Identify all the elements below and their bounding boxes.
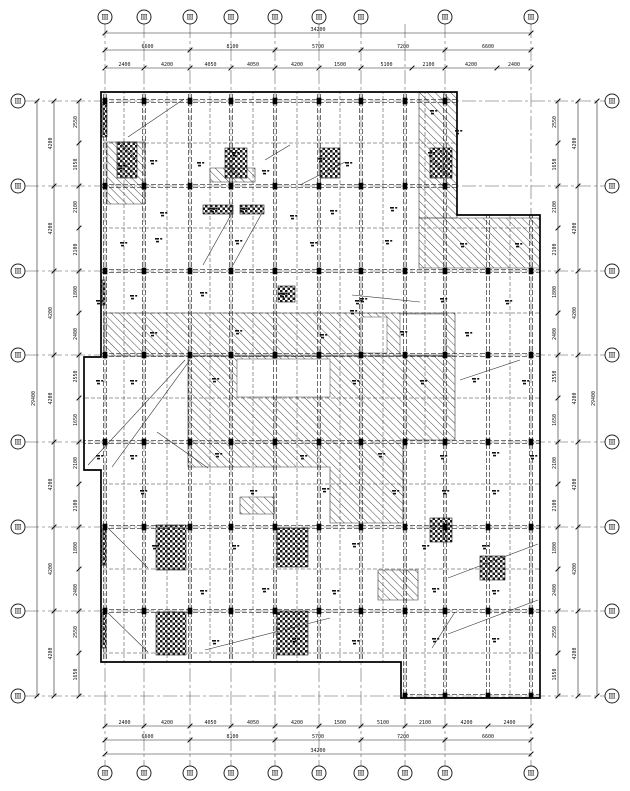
dimension-value: 2100 — [73, 499, 79, 511]
annotation-mark — [319, 161, 322, 163]
annotation-mark — [465, 332, 469, 334]
annotation-mark — [506, 303, 509, 305]
annotation-mark — [217, 640, 219, 642]
annotation-mark — [205, 590, 207, 592]
dimension-value: 4200 — [48, 478, 54, 490]
column-block — [273, 352, 278, 359]
annotation-mark — [393, 493, 396, 495]
annotation-mark — [455, 130, 459, 132]
annotation-mark — [318, 158, 322, 160]
annotation-mark — [315, 242, 317, 244]
dimension-value: 2400 — [118, 720, 130, 726]
annotation-mark — [386, 243, 389, 245]
annotation-mark — [385, 240, 389, 242]
annotation-mark — [422, 545, 426, 547]
annotation-mark — [322, 488, 326, 490]
annotation-mark — [293, 641, 296, 643]
dimension-value: 4200 — [572, 392, 578, 404]
annotation-mark — [510, 300, 512, 302]
column-block — [142, 439, 147, 446]
annotation-mark — [263, 173, 266, 175]
column-block — [317, 98, 322, 105]
annotation-mark — [352, 543, 356, 545]
annotation-mark — [213, 381, 216, 383]
annotation-mark — [251, 493, 254, 495]
column-block — [142, 183, 147, 190]
axis-bubble-label: Ⅲ — [527, 13, 534, 22]
axis-bubble-label: Ⅲ — [14, 523, 21, 532]
dimension-value: 4200 — [572, 222, 578, 234]
annotation-mark — [240, 240, 242, 242]
dimension-value: 2100 — [552, 457, 558, 469]
annotation-mark — [492, 638, 496, 640]
annotation-mark — [433, 152, 435, 154]
annotation-mark — [217, 378, 219, 380]
annotation-mark — [311, 245, 314, 247]
column-block — [317, 352, 322, 359]
column-block — [273, 524, 278, 531]
annotation-mark — [493, 493, 496, 495]
cross-hatch-region — [93, 614, 106, 648]
annotation-mark — [145, 490, 147, 492]
annotation-mark — [310, 242, 314, 244]
column-block — [359, 524, 364, 531]
dimension-value: 4200 — [572, 307, 578, 319]
annotation-mark — [335, 210, 337, 212]
dimension-value: 4200 — [48, 307, 54, 319]
axis-bubble-label: Ⅲ — [14, 97, 21, 106]
column-block — [229, 524, 234, 531]
annotation-mark — [97, 383, 100, 385]
axis-bubble-label: Ⅲ — [140, 769, 147, 778]
dimension-value: 2100 — [73, 201, 79, 213]
cross-hatch-region — [480, 556, 505, 580]
annotation-mark — [345, 162, 349, 164]
axis-bubble-label: Ⅲ — [608, 523, 615, 532]
annotation-mark — [240, 208, 244, 210]
annotation-mark — [356, 303, 359, 305]
leader-line — [108, 613, 148, 652]
dimension-value: 2400 — [552, 584, 558, 596]
dimension-value: 5700 — [312, 734, 324, 740]
annotation-mark — [493, 593, 496, 595]
axis-bubble-label: Ⅲ — [608, 351, 615, 360]
annotation-mark — [290, 215, 294, 217]
axis-bubble-label: Ⅲ — [401, 769, 408, 778]
annotation-mark — [437, 588, 439, 590]
annotation-mark — [291, 218, 294, 220]
annotation-mark — [441, 458, 444, 460]
axis-bubble-label: Ⅲ — [608, 692, 615, 701]
annotation-mark — [531, 458, 534, 460]
annotation-mark — [333, 593, 336, 595]
dimension-value: 2400 — [503, 720, 515, 726]
annotation-mark — [121, 245, 124, 247]
dimension-value: 2100 — [552, 243, 558, 255]
annotation-mark — [497, 590, 499, 592]
dimension-value: 1650 — [73, 668, 79, 680]
column-block — [317, 608, 322, 615]
annotation-mark — [245, 208, 247, 210]
hatch-white-inset — [237, 359, 330, 397]
dimension-value: 8100 — [226, 44, 238, 50]
column-block — [229, 183, 234, 190]
axis-bubble-label: Ⅲ — [608, 182, 615, 191]
column-block — [188, 268, 193, 275]
annotation-mark — [197, 162, 201, 164]
axis-bubble-label: Ⅲ — [14, 267, 21, 276]
column-block — [403, 608, 408, 615]
annotation-mark — [97, 303, 100, 305]
annotation-mark — [353, 383, 356, 385]
dimension-value: 34200 — [310, 748, 325, 754]
dimension-value: 2100 — [552, 499, 558, 511]
annotation-mark — [461, 246, 464, 248]
annotation-mark — [131, 458, 134, 460]
column-block — [443, 608, 448, 615]
column-block — [103, 524, 108, 531]
annotation-mark — [297, 638, 299, 640]
axis-bubble-label: Ⅲ — [608, 438, 615, 447]
column-block — [486, 608, 491, 615]
annotation-mark — [355, 310, 357, 312]
column-block — [359, 183, 364, 190]
column-block — [486, 352, 491, 359]
annotation-mark — [353, 546, 356, 548]
dimension-value: 1800 — [73, 286, 79, 298]
annotation-mark — [445, 455, 447, 457]
axis-bubble-label: Ⅲ — [608, 97, 615, 106]
dimension-value: 4050 — [204, 720, 216, 726]
dimension-value: 6600 — [141, 44, 153, 50]
annotation-mark — [119, 168, 122, 170]
annotation-mark — [233, 155, 236, 157]
column-block — [142, 98, 147, 105]
dimension-value: 4200 — [291, 720, 303, 726]
dimension-value: 1650 — [552, 158, 558, 170]
annotation-mark — [492, 452, 496, 454]
annotation-mark — [212, 640, 216, 642]
annotation-mark — [240, 330, 242, 332]
dimension-value: 1500 — [334, 62, 346, 68]
building-interior — [25, 24, 605, 766]
annotation-mark — [295, 215, 297, 217]
annotation-mark — [456, 133, 459, 135]
annotation-mark — [101, 380, 103, 382]
annotation-mark — [156, 241, 159, 243]
annotation-mark — [205, 292, 207, 294]
dimension-value: 4200 — [460, 720, 472, 726]
annotation-mark — [135, 295, 137, 297]
cross-hatch-region — [430, 518, 452, 542]
cross-hatch-region — [156, 612, 186, 655]
dimension-value: 7200 — [397, 734, 409, 740]
dimension-value: 29400 — [31, 391, 37, 406]
dimension-value: 1500 — [334, 720, 346, 726]
column-block — [486, 439, 491, 446]
annotation-mark — [155, 160, 157, 162]
annotation-mark — [101, 300, 103, 302]
axis-bubble-label: Ⅲ — [441, 769, 448, 778]
dimension-value: 2100 — [422, 62, 434, 68]
axis-bubble-label: Ⅲ — [315, 13, 322, 22]
column-block — [529, 608, 534, 615]
column-block — [142, 608, 147, 615]
annotation-mark — [353, 643, 356, 645]
annotation-mark — [97, 458, 100, 460]
column-block — [443, 352, 448, 359]
annotation-mark — [520, 243, 522, 245]
column-block — [529, 268, 534, 275]
annotation-mark — [497, 490, 499, 492]
annotation-mark — [350, 310, 354, 312]
dimension-value: 6600 — [482, 734, 494, 740]
column-block — [188, 524, 193, 531]
annotation-mark — [397, 490, 399, 492]
dimension-value: 2550 — [73, 116, 79, 128]
axis-bubble-label: Ⅲ — [101, 13, 108, 22]
annotation-mark — [357, 543, 359, 545]
column-block — [529, 524, 534, 531]
annotation-mark — [428, 152, 432, 154]
annotation-mark — [487, 545, 489, 547]
annotation-mark — [330, 210, 334, 212]
annotation-mark — [523, 383, 526, 385]
annotation-mark — [131, 383, 134, 385]
cross-hatch-region — [277, 611, 308, 655]
column-block — [188, 183, 193, 190]
axis-bubble-label: Ⅲ — [140, 13, 147, 22]
annotation-mark — [440, 298, 444, 300]
annotation-mark — [300, 455, 304, 457]
annotation-mark — [130, 455, 134, 457]
leader-line — [205, 618, 330, 650]
annotation-mark — [262, 170, 266, 172]
annotation-mark — [130, 295, 134, 297]
dimension-value: 2100 — [552, 201, 558, 213]
dimension-value: 4050 — [204, 62, 216, 68]
annotation-mark — [440, 455, 444, 457]
annotation-mark — [233, 548, 236, 550]
cross-hatch-region — [93, 530, 106, 565]
dimension-value: 2100 — [73, 457, 79, 469]
annotation-mark — [125, 242, 127, 244]
annotation-mark — [431, 113, 434, 115]
column-block — [359, 98, 364, 105]
annotation-mark — [150, 332, 154, 334]
column-block — [317, 524, 322, 531]
column-block — [188, 352, 193, 359]
annotation-mark — [331, 213, 334, 215]
annotation-mark — [492, 590, 496, 592]
annotation-mark — [352, 380, 356, 382]
annotation-mark — [250, 490, 254, 492]
axis-bubble-label: Ⅲ — [271, 769, 278, 778]
column-block — [486, 268, 491, 275]
dimension-value: 2100 — [419, 720, 431, 726]
axis-bubble-label: Ⅲ — [14, 607, 21, 616]
dimension-value: 2550 — [552, 116, 558, 128]
annotation-mark — [155, 238, 159, 240]
axis-bubble-label: Ⅲ — [608, 267, 615, 276]
annotation-mark — [427, 545, 429, 547]
column-block — [188, 608, 193, 615]
annotation-mark — [442, 490, 446, 492]
annotation-mark — [237, 545, 239, 547]
annotation-mark — [101, 455, 103, 457]
annotation-mark — [198, 165, 201, 167]
axis-bubble-label: Ⅲ — [14, 182, 21, 191]
column-block — [359, 439, 364, 446]
dimension-value: 5100 — [380, 62, 392, 68]
annotation-mark — [433, 641, 436, 643]
column-block — [403, 439, 408, 446]
annotation-mark — [232, 545, 236, 547]
annotation-mark — [210, 208, 214, 210]
annotation-mark — [327, 488, 329, 490]
annotation-mark — [378, 453, 382, 455]
annotation-mark — [421, 383, 424, 385]
annotation-mark — [255, 490, 257, 492]
annotation-mark — [400, 331, 404, 333]
column-block — [229, 439, 234, 446]
annotation-mark — [432, 638, 436, 640]
annotation-mark — [130, 380, 134, 382]
dimension-value: 2100 — [73, 243, 79, 255]
annotation-mark — [429, 155, 432, 157]
annotation-mark — [216, 456, 219, 458]
annotation-mark — [202, 162, 204, 164]
annotation-mark — [391, 210, 394, 212]
annotation-mark — [215, 453, 219, 455]
annotation-mark — [262, 588, 266, 590]
annotation-mark — [430, 110, 434, 112]
axis-bubble-label: Ⅲ — [14, 438, 21, 447]
annotation-mark — [443, 493, 446, 495]
axis-bubble-label: Ⅲ — [357, 13, 364, 22]
dimension-value: 34200 — [310, 27, 325, 33]
column-block — [443, 524, 448, 531]
annotation-mark — [465, 243, 467, 245]
annotation-mark — [325, 334, 327, 336]
annotation-mark — [445, 298, 447, 300]
column-block — [403, 352, 408, 359]
dimension-value: 5100 — [377, 720, 389, 726]
annotation-mark — [401, 334, 404, 336]
annotation-mark — [96, 455, 100, 457]
dimension-value: 2400 — [508, 62, 520, 68]
leader-line — [203, 213, 232, 265]
annotation-mark — [152, 545, 156, 547]
annotation-mark — [535, 455, 537, 457]
dimension-value: 4050 — [247, 62, 259, 68]
annotation-mark — [236, 243, 239, 245]
annotation-mark — [365, 298, 367, 300]
annotation-mark — [236, 333, 239, 335]
annotation-mark — [437, 638, 439, 640]
column-block — [443, 183, 448, 190]
annotation-mark — [447, 490, 449, 492]
leader-line — [460, 360, 520, 380]
annotation-mark — [441, 301, 444, 303]
dimension-value: 2400 — [73, 328, 79, 340]
annotation-mark — [135, 455, 137, 457]
annotation-mark — [131, 298, 134, 300]
dimension-value: 4200 — [48, 222, 54, 234]
annotation-mark — [232, 152, 236, 154]
column-block — [103, 439, 108, 446]
annotation-mark — [483, 548, 486, 550]
dimension-value: 8100 — [226, 734, 238, 740]
hatch-white-inset — [400, 314, 445, 355]
column-block — [317, 268, 322, 275]
annotation-mark — [201, 593, 204, 595]
leader-line — [88, 360, 185, 465]
annotation-mark — [420, 380, 424, 382]
dimension-value: 2550 — [73, 626, 79, 638]
column-block — [229, 268, 234, 275]
annotation-mark — [321, 337, 324, 339]
annotation-mark — [241, 211, 244, 213]
dimension-value: 4200 — [291, 62, 303, 68]
annotation-mark — [482, 545, 486, 547]
annotation-mark — [392, 490, 396, 492]
axis-bubble-label: Ⅲ — [441, 13, 448, 22]
annotation-mark — [351, 313, 354, 315]
annotation-mark — [200, 292, 204, 294]
annotation-mark — [150, 160, 154, 162]
annotation-mark — [96, 300, 100, 302]
dimension-value: 1800 — [73, 542, 79, 554]
dimension-value: 4200 — [465, 62, 477, 68]
annotation-mark — [493, 641, 496, 643]
column-block — [273, 608, 278, 615]
dimension-value: 6600 — [482, 44, 494, 50]
annotation-mark — [135, 380, 137, 382]
annotation-mark — [352, 640, 356, 642]
cross-hatch-region — [156, 525, 186, 570]
cross-hatch-region — [203, 205, 233, 214]
column-block — [142, 524, 147, 531]
axis-bubble-label: Ⅲ — [357, 769, 364, 778]
annotation-mark — [432, 588, 436, 590]
column-block — [229, 608, 234, 615]
dimension-value: 4200 — [48, 137, 54, 149]
axis-bubble-label: Ⅲ — [186, 13, 193, 22]
dimension-value: 2400 — [118, 62, 130, 68]
diagonal-hatch-region — [240, 497, 274, 514]
annotation-mark — [160, 238, 162, 240]
annotation-mark — [425, 380, 427, 382]
column-block — [317, 439, 322, 446]
column-block — [103, 608, 108, 615]
dimension-value: 2550 — [73, 370, 79, 382]
annotation-mark — [423, 548, 426, 550]
annotation-mark — [357, 380, 359, 382]
annotation-mark — [281, 296, 284, 298]
column-block — [273, 183, 278, 190]
leader-line — [112, 360, 190, 467]
annotation-mark — [390, 207, 394, 209]
annotation-mark — [530, 455, 534, 457]
column-block — [359, 608, 364, 615]
annotation-mark — [263, 591, 266, 593]
annotation-mark — [460, 130, 462, 132]
annotation-mark — [473, 381, 476, 383]
annotation-mark — [120, 242, 124, 244]
annotation-mark — [213, 643, 216, 645]
leader-line — [448, 600, 538, 634]
